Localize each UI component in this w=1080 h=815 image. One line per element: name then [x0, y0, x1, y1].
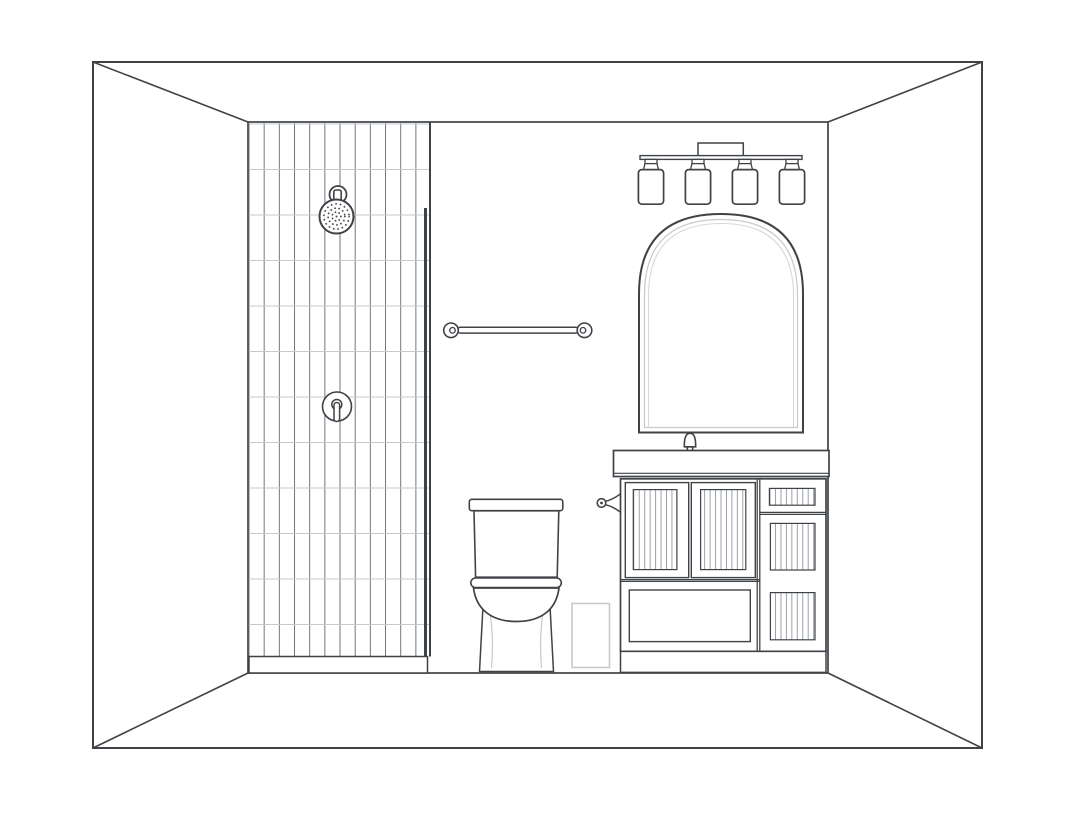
shower-valve: [323, 392, 352, 422]
cabinet-door-right-panel: [701, 490, 746, 570]
drawer-1-panel: [769, 488, 815, 505]
towel-bar-rail: [458, 327, 579, 333]
vanity-cabinet: [597, 479, 826, 673]
valve-lever: [334, 403, 340, 422]
bottom-drawer-panel: [629, 590, 750, 642]
light-bar: [640, 156, 802, 160]
drawer-2-panel: [770, 523, 815, 570]
bathroom-elevation-illustration: Bathroom Elevation Line Drawing: [0, 0, 1080, 815]
waste-bin: [572, 604, 610, 668]
line-drawing-canvas: [0, 0, 1080, 815]
toilet-seat: [471, 578, 562, 588]
shower: [249, 122, 430, 673]
counter-slab: [614, 451, 830, 477]
toilet: [469, 499, 563, 671]
towel-bar-post-right-cap: [580, 328, 586, 334]
drawer-3-panel: [770, 593, 815, 640]
towel-bar-post-left-cap: [450, 328, 456, 334]
mirror-frame-outer: [639, 214, 803, 433]
toilet-tank: [474, 511, 559, 577]
light-mounting-plate: [698, 143, 743, 156]
towel-hook-knob-center: [600, 502, 603, 505]
cabinet-door-left-panel: [633, 490, 677, 570]
faucet-spout-cap: [684, 433, 695, 447]
shower-curb: [249, 657, 428, 674]
arched-mirror: [639, 214, 803, 433]
cabinet-toe-kick: [621, 651, 827, 672]
spray-dot-center: [336, 216, 338, 218]
vanity-countertop: [614, 451, 830, 477]
toilet-tank-lid: [469, 499, 563, 510]
